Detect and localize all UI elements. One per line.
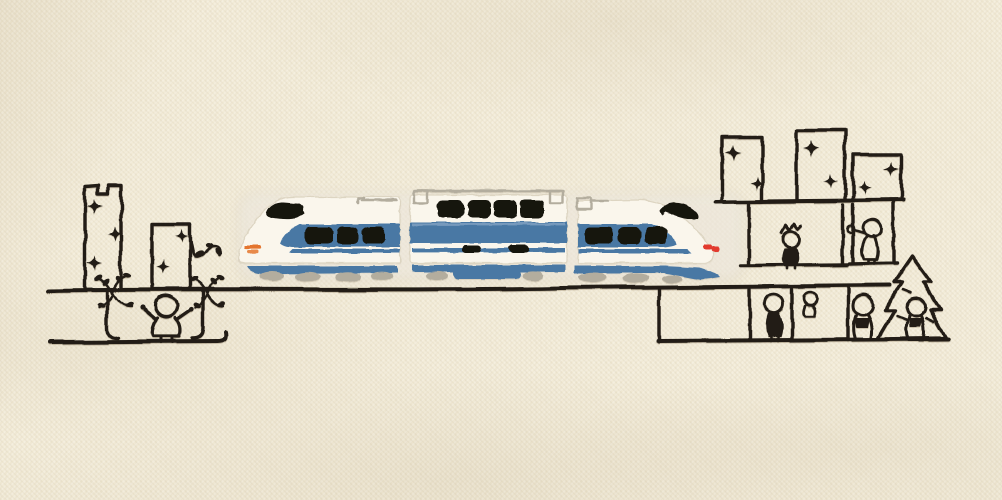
person-figure-by-tree (907, 298, 925, 340)
wheel (371, 272, 393, 281)
sparkle-icon (86, 199, 102, 215)
left-city (85, 186, 223, 287)
person-figure-walking (853, 295, 873, 340)
sparkle-icon (156, 259, 170, 273)
train-window (305, 227, 333, 244)
wheel (295, 272, 321, 282)
train-window (520, 200, 544, 218)
elevated-platform-line (716, 200, 903, 202)
train-window (468, 200, 491, 218)
tail-light (711, 246, 720, 252)
sparkle-icon (175, 228, 189, 242)
wheel (578, 272, 606, 282)
door-mark (462, 245, 481, 253)
sparkle-icon (804, 141, 821, 158)
train-window (437, 200, 464, 218)
sparkle-icon (823, 173, 838, 188)
train-window (337, 227, 358, 244)
wheel (426, 271, 448, 280)
belt-band-highlight (412, 223, 565, 225)
embroidery-scene (0, 0, 1002, 500)
front-accent-stripe (289, 249, 400, 253)
headlight (244, 245, 261, 249)
center-bogie (453, 265, 521, 279)
train-window (618, 227, 641, 244)
sparkle-icon (857, 181, 871, 195)
train-window (494, 200, 517, 218)
left-underground-pit (93, 272, 226, 342)
middle-car (410, 191, 567, 281)
tail-light (703, 244, 712, 250)
train-window (362, 227, 385, 244)
door-mark (509, 245, 529, 253)
sparkle-icon (87, 255, 103, 271)
rear-skirt (574, 266, 666, 273)
vine-branch (190, 239, 220, 256)
sparkle-icon (725, 144, 741, 160)
pit-right-wall (192, 291, 203, 338)
building-c (853, 154, 901, 200)
platform-room-2 (850, 202, 897, 264)
person-figure-small (804, 292, 817, 318)
train-window (585, 227, 613, 244)
right-city (716, 130, 903, 269)
wheel (260, 272, 284, 281)
wheel (522, 271, 544, 280)
train (239, 191, 720, 283)
middle-accent-stripe (412, 248, 565, 252)
headlight-lower (247, 250, 258, 253)
wheel (662, 275, 682, 283)
sparkle-icon (883, 161, 899, 177)
train-window (645, 227, 667, 244)
person-figure-cheering (139, 295, 193, 342)
rear-accent-stripe (578, 249, 692, 253)
building-b (797, 130, 845, 200)
person-figure-spiky (782, 224, 801, 269)
wheel (335, 272, 361, 282)
wheel (623, 273, 649, 283)
person-figure-standing (765, 294, 783, 341)
building-a (722, 137, 762, 200)
fabric-photo (0, 0, 1002, 500)
main-ground-line (48, 285, 889, 290)
